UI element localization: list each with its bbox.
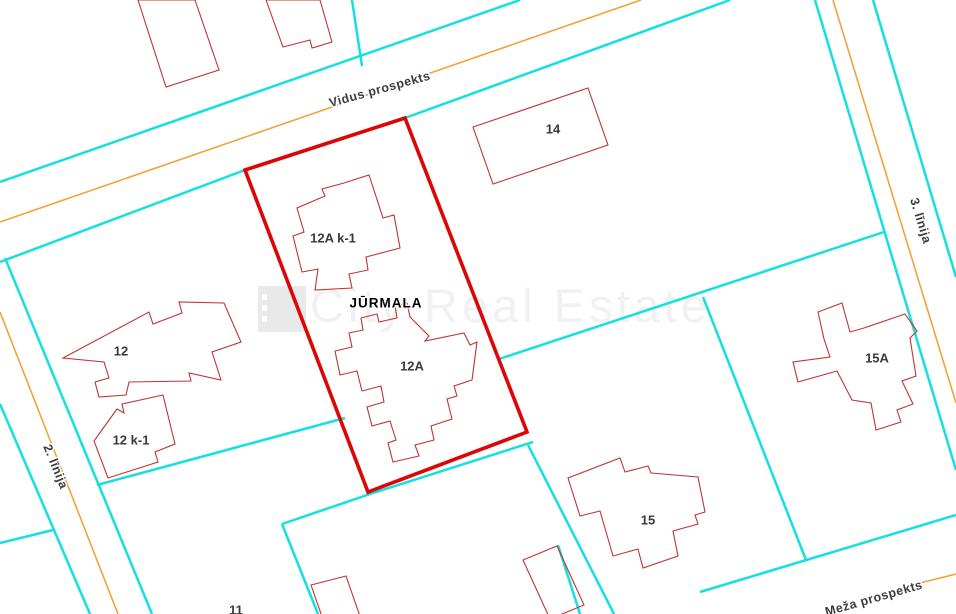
building-12-k1-label: 12 k-1 (113, 432, 150, 447)
building-14-label: 14 (546, 121, 561, 136)
cadastral-map[interactable]: City Real Estate1412A k-112A1212 k-11515… (0, 0, 956, 614)
building-12-label: 12 (114, 343, 128, 358)
building-15-label: 15 (641, 512, 655, 527)
map-canvas[interactable]: City Real Estate1412A k-112A1212 k-11515… (0, 0, 956, 614)
watermark-logo-dot (262, 316, 267, 322)
watermark-logo-dot (262, 305, 267, 311)
building-12a-k1-label: 12A k-1 (310, 230, 356, 245)
building-12a-label: 12A (400, 358, 424, 373)
building-11-label: 11 (229, 602, 243, 614)
watermark-logo-dot (262, 294, 267, 300)
building-15a-label: 15A (865, 350, 889, 365)
region-label: JŪRMALA (350, 296, 423, 311)
